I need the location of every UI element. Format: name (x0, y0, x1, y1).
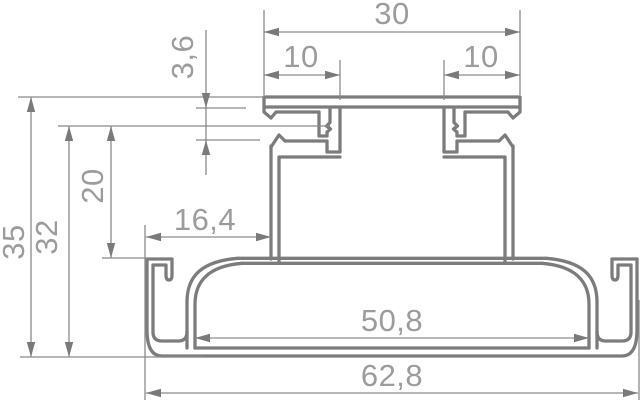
arrow-upper-height-top (107, 126, 115, 141)
top-plate (264, 97, 520, 107)
dimension-arrowheads (27, 28, 638, 397)
arrow-channel-span-left (195, 334, 210, 342)
arrow-side-offset-right (256, 233, 271, 241)
arrow-lip-height-bottom (202, 140, 210, 155)
technical-drawing-canvas: 30 10 10 3,6 35 32 20 16,4 50,8 62,8 (0, 0, 642, 405)
dim-label-slot-left: 10 (283, 39, 318, 74)
arrow-top-width-right (505, 28, 520, 36)
arrow-slot-left-a (264, 71, 279, 79)
dim-label-slot-right: 10 (463, 39, 498, 74)
arrow-total-height-bottom (27, 342, 35, 357)
body-inner-wall-left (279, 157, 340, 263)
dim-label-total-width: 62,8 (361, 358, 423, 393)
arrow-top-width-left (264, 28, 279, 36)
left-clip-lip (264, 107, 331, 136)
right-clip-lip (454, 107, 521, 136)
arrow-total-width-left (146, 389, 161, 397)
dimension-lines (31, 30, 638, 393)
base-curve-inner-left (195, 263, 242, 348)
dim-label-channel-span: 50,8 (361, 303, 423, 338)
dim-label-top-width: 30 (374, 0, 409, 31)
dim-label-total-height: 35 (0, 224, 31, 259)
dim-label-side-offset: 16,4 (174, 202, 236, 237)
dimension-labels: 30 10 10 3,6 35 32 20 16,4 50,8 62,8 (0, 0, 499, 393)
arrow-slot-right-a (444, 71, 459, 79)
dim-label-lip-height: 3,6 (165, 35, 200, 80)
arrow-slot-right-b (505, 71, 520, 79)
arrow-total-width-right (623, 389, 638, 397)
arrow-slot-left-b (325, 71, 340, 79)
right-foot-channel (597, 259, 637, 341)
profile-cross-section-drawing: 30 10 10 3,6 35 32 20 16,4 50,8 62,8 (0, 0, 642, 405)
body-inner-wall-right (444, 157, 505, 263)
arrow-upper-height-bottom (107, 243, 115, 258)
arrow-channel-span-right (574, 334, 589, 342)
base-curve-inner-right (542, 263, 589, 348)
left-foot-channel (147, 259, 187, 341)
dim-label-upper-height: 20 (75, 168, 110, 203)
arrow-total-height-top (27, 97, 35, 112)
arrow-body-height-top (65, 126, 73, 141)
arrow-lip-height-top (202, 93, 210, 108)
arrow-side-offset-left (146, 233, 161, 241)
dim-label-body-height: 32 (29, 219, 64, 254)
arrow-body-height-bottom (65, 342, 73, 357)
